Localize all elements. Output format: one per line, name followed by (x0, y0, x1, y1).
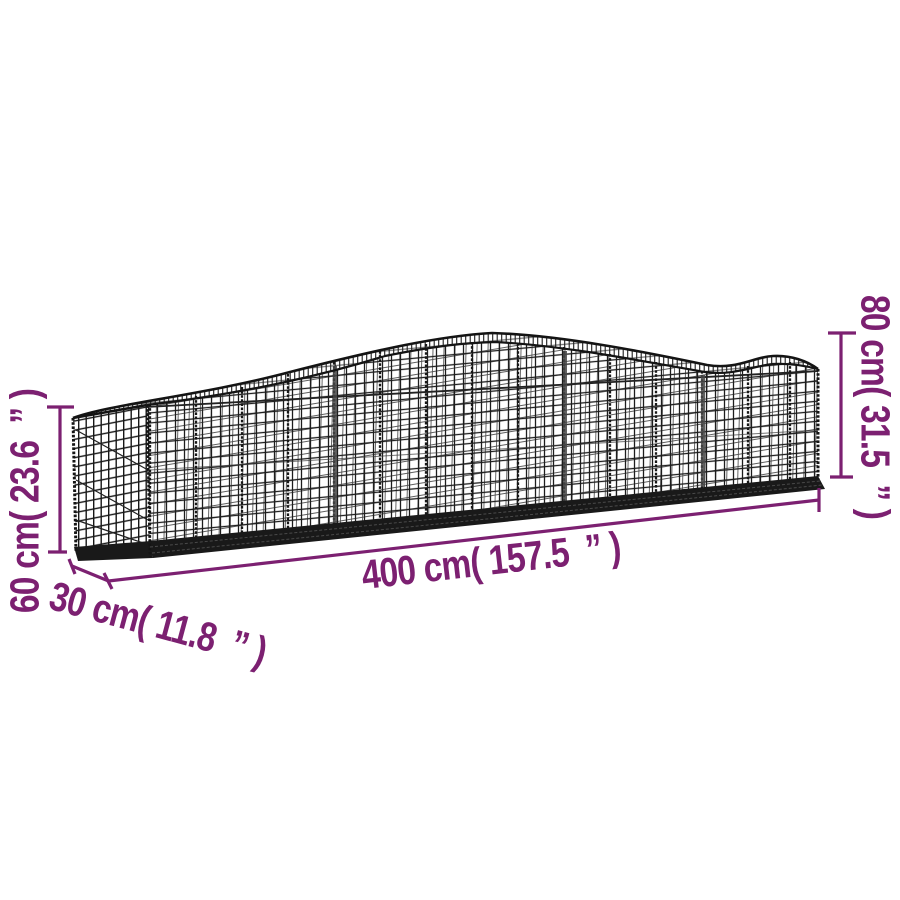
product-dimension-diagram: 80 cm( 31.5 ” ) 60 cm( 23.6 ” ) 400 cm( … (0, 0, 900, 900)
dimension-label-max-height: 80 cm( 31.5 ” ) (855, 295, 896, 519)
dimension-line-60cm (47, 407, 74, 552)
dimension-label-end-height: 60 cm( 23.6 ” ) (5, 389, 46, 613)
gabion-basket-illustration (0, 0, 900, 900)
